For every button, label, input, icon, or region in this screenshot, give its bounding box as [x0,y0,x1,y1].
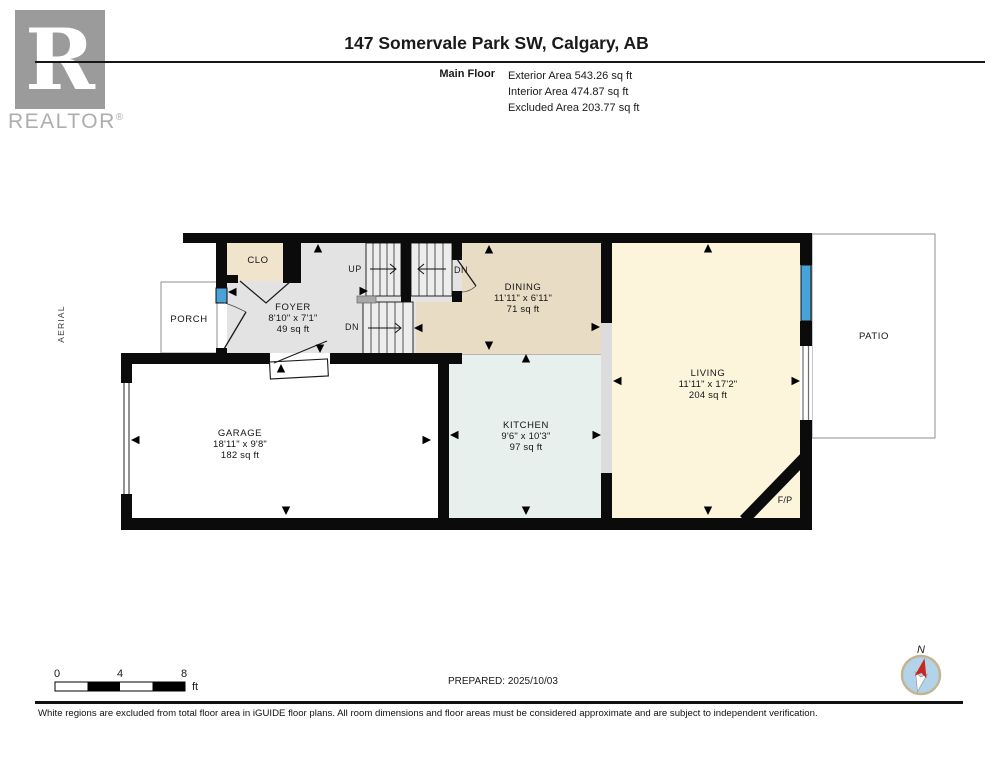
wall-garage-kitchen [438,364,449,518]
wall-stair-middle [401,243,411,302]
stairs-up-label: UP [348,264,362,274]
room-label-fireplace: F/P [778,495,793,506]
wall-living-right-mid [800,321,812,346]
header-divider-line [35,61,985,63]
scale-tick-8: 8 [181,668,187,680]
wall-garage-top-right [330,353,462,364]
stairs-down-lower-label: DN [345,322,359,332]
room-label-dining: DINING 11'11" x 6'11" 71 sq ft [494,282,552,315]
wall-closet-bottom [216,275,238,283]
room-label-garage: GARAGE 18'11" x 9'8" 182 sq ft [213,428,267,461]
wall-stair-stub-bottom [452,291,462,302]
page-title: 147 Somervale Park SW, Calgary, AB [0,33,993,54]
registered-mark: ® [116,112,125,123]
wall-garage-left-upper [121,353,132,383]
stairs-down-upper-label: DN [454,265,468,275]
floorplan-canvas [0,0,993,768]
scale-tick-4: 4 [117,668,123,680]
wall-top [183,233,812,243]
room-label-foyer: FOYER 8'10" x 7'1" 49 sq ft [268,302,317,335]
wall-living-right-bottom [800,420,812,518]
wall-bottom [121,518,812,530]
prepared-date: PREPARED: 2025/10/03 [448,676,558,687]
wall-kitchen-living [601,473,612,518]
wall-garage-top-left [121,353,270,364]
footer-rule [35,701,963,704]
realtor-logo-wordmark: REALTOR® [8,110,138,134]
compass-n-label: N [906,644,936,656]
wall-garage-left-lower [121,494,132,520]
room-label-porch: PORCH [170,314,207,325]
kitchen-living-threshold [601,323,612,473]
dining-floor-pocket [416,302,462,354]
wall-living-right-top [800,243,812,265]
wall-stair-stub-top [452,243,462,260]
scale-unit: ft [192,681,198,693]
patio-sliding-door [800,346,812,420]
disclaimer-text: White regions are excluded from total fl… [38,708,968,719]
stair-landing [357,296,376,303]
wall-closet-right [283,243,301,283]
foyer-window [216,288,227,303]
room-label-patio: PATIO [859,331,889,342]
scale-tick-0: 0 [54,668,60,680]
scale-bar [55,682,185,691]
living-window [801,265,811,321]
room-label-kitchen: KITCHEN 9'6" x 10'3" 97 sq ft [501,420,550,453]
wall-dining-living [601,243,612,323]
garage-door [121,383,132,494]
realtor-logo-letter: R [25,18,95,102]
room-label-closet: CLO [247,255,268,266]
floorplan-page: { "header": { "logo": { "letter": "R", "… [0,0,993,768]
realtor-logo: R [15,10,105,109]
room-label-living: LIVING 11'11" x 17'2" 204 sq ft [679,368,738,401]
compass-north-icon [902,656,940,694]
